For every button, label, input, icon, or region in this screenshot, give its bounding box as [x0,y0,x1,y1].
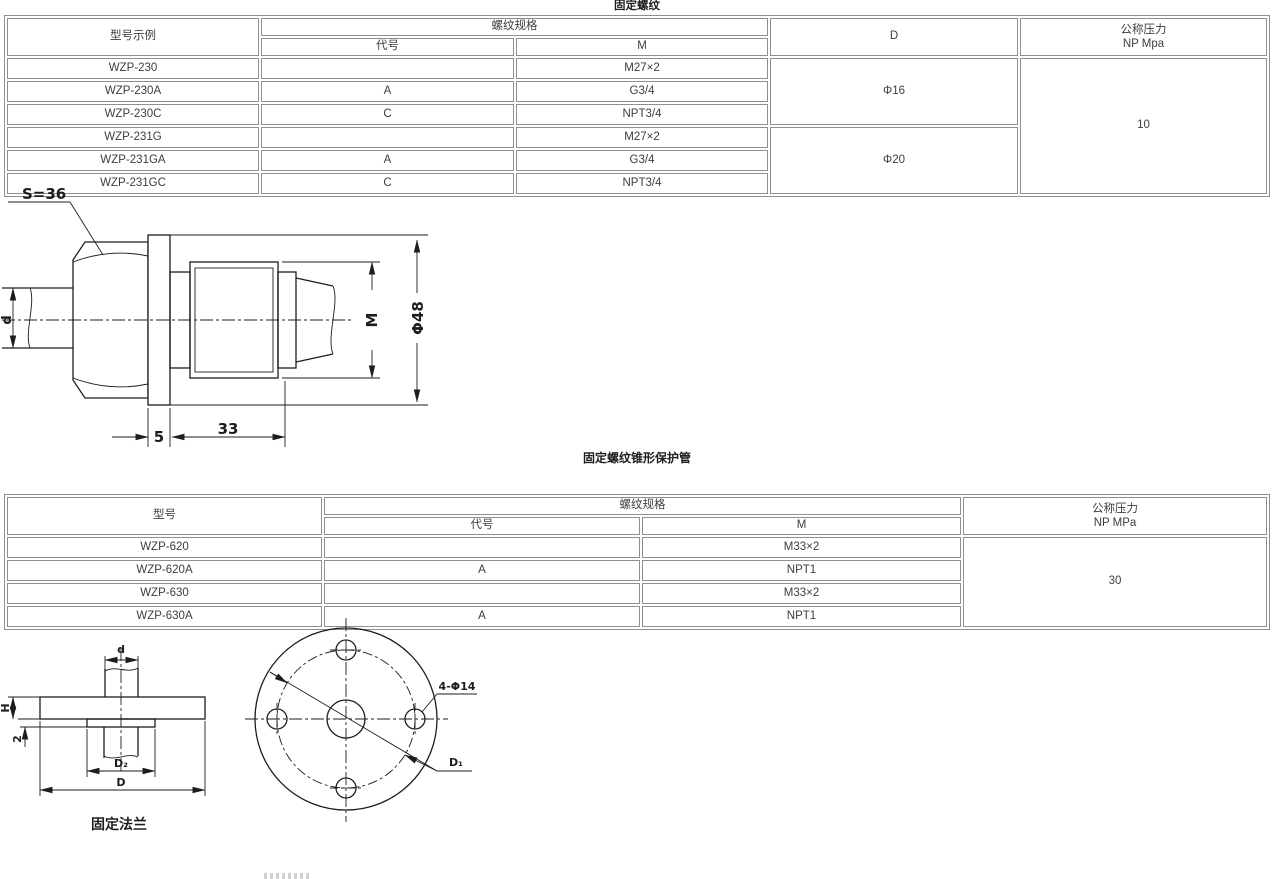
m-cell: NPT3/4 [516,104,768,125]
code-cell [261,58,514,79]
fixed-thread-table: 型号示例 螺纹规格 D 公称压力 NP Mpa 代号 M WZP-230 M27… [4,15,1270,197]
model-cell: WZP-620A [7,560,322,581]
header-m: M [642,517,961,535]
table-header-row: 型号 螺纹规格 公称压力 NP MPa [7,497,1267,515]
m-cell: M33×2 [642,537,961,558]
d-value-cell: Φ20 [770,127,1018,194]
h-dimension-label: H [0,703,12,712]
upper-tube [105,668,138,697]
flange-drawings: d H 2 [0,615,500,845]
m-cell: M27×2 [516,58,768,79]
header-code: 代号 [324,517,640,535]
h-dimension: H [0,697,40,719]
m-cell: NPT3/4 [516,173,768,194]
model-cell: WZP-231GA [7,150,259,171]
header-pressure-line2: NP MPa [1094,517,1137,529]
model-cell: WZP-630 [7,583,322,604]
header-pressure-line1: 公称压力 [1121,24,1167,36]
dia48-dimension-label: Φ48 [409,301,427,335]
code-cell: A [324,560,640,581]
datasheet-page: 固定螺纹 型号示例 螺纹规格 D 公称压力 NP Mpa 代号 M [0,0,1284,879]
section2-title: 固定螺纹锥形保护管 [4,449,1270,466]
table-row: WZP-230 M27×2 Φ16 10 [7,58,1267,79]
table-header-row: 型号示例 螺纹规格 D 公称压力 NP Mpa [7,18,1267,36]
s36-callout: S=36 [8,185,103,255]
code-cell [324,537,640,558]
holes-callout-label: 4-Φ14 [439,680,476,693]
code-cell: A [261,81,514,102]
model-cell: WZP-231G [7,127,259,148]
conical-tube-table: 型号 螺纹规格 公称压力 NP MPa 代号 M WZP-620 M33×2 3… [4,494,1270,630]
header-m: M [516,38,768,56]
dim33-label: 33 [218,420,239,438]
model-cell: WZP-230A [7,81,259,102]
flange-side-view: d H 2 [0,643,205,833]
d-dimension: d [0,288,15,348]
m-cell: G3/4 [516,150,768,171]
pressure-value-cell: 30 [963,537,1267,627]
model-cell: WZP-230 [7,58,259,79]
header-d: D [770,18,1018,56]
header-pressure-line1: 公称压力 [1092,503,1138,515]
header-model: 型号 [7,497,322,535]
header-thread-spec: 螺纹规格 [261,18,768,36]
m-dimension-label: M [363,313,381,328]
table-row: WZP-620 M33×2 30 [7,537,1267,558]
m-cell: NPT1 [642,606,961,627]
center-lines [245,618,448,822]
threaded-fitting-drawing: S=36 d [0,185,440,450]
d-outer-dimension-label: D [116,776,125,789]
model-cell: WZP-620 [7,537,322,558]
header-model: 型号示例 [7,18,259,56]
d2-dimension-label: D₂ [114,757,128,770]
header-pressure: 公称压力 NP Mpa [1020,18,1267,56]
header-pressure: 公称压力 NP MPa [963,497,1267,535]
m-cell: G3/4 [516,81,768,102]
d1-dimension-label: D₁ [449,756,463,769]
m-cell: M33×2 [642,583,961,604]
code-cell [261,127,514,148]
header-thread-spec: 螺纹规格 [324,497,961,515]
flange-plate [40,697,205,719]
m-cell: NPT1 [642,560,961,581]
dim5-label: 5 [154,428,164,446]
two-dimension: 2 [11,727,87,747]
flange-caption: 固定法兰 [91,816,147,833]
header-code: 代号 [261,38,514,56]
header-pressure-line2: NP Mpa [1123,38,1164,50]
s36-label: S=36 [22,185,66,203]
model-cell: WZP-230C [7,104,259,125]
code-cell: C [261,104,514,125]
two-dimension-label: 2 [11,735,24,743]
code-cell [324,583,640,604]
section1-title: 固定螺纹 [4,0,1270,13]
clipped-text-fragment [264,873,312,879]
code-cell: A [261,150,514,171]
m-cell: M27×2 [516,127,768,148]
flange-front-view: D₁ 4-Φ14 [245,618,477,822]
pressure-value-cell: 10 [1020,58,1267,194]
d-value-cell: Φ16 [770,58,1018,125]
bottom-dimensions: 5 33 [112,381,285,447]
